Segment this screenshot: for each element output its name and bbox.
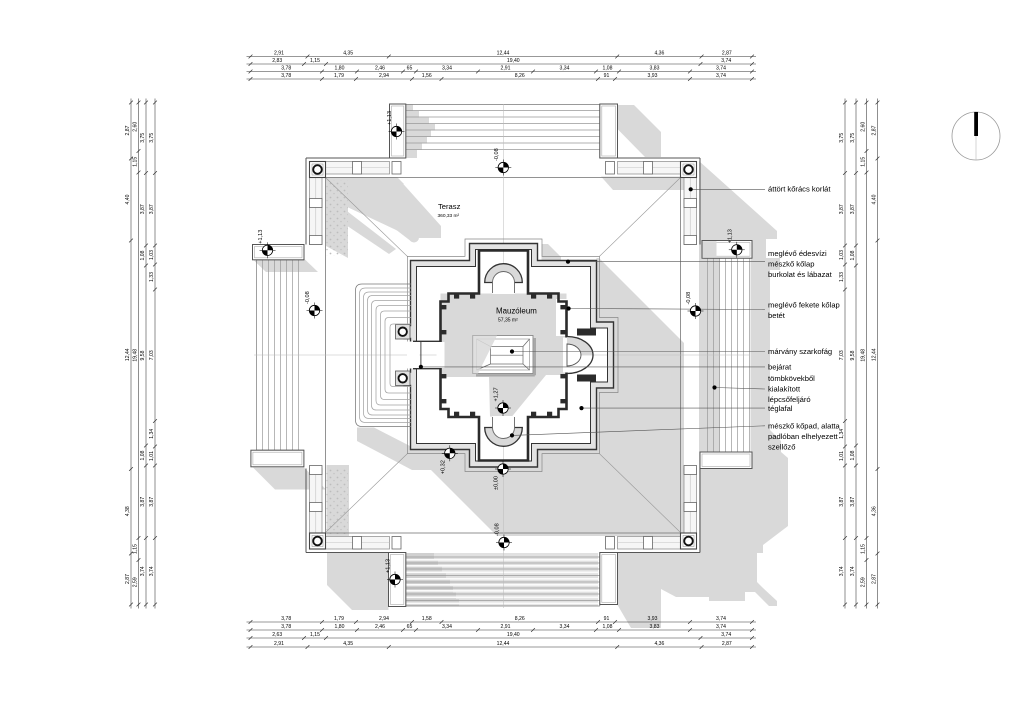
svg-text:1,80: 1,80 — [335, 624, 345, 630]
svg-text:2,46: 2,46 — [375, 66, 385, 72]
svg-text:91: 91 — [604, 616, 610, 622]
svg-text:3,78: 3,78 — [281, 73, 291, 79]
svg-text:meglévő fekete kőlap: meglévő fekete kőlap — [768, 301, 840, 310]
svg-text:bejárat: bejárat — [768, 363, 792, 372]
svg-text:+1,13: +1,13 — [387, 111, 393, 125]
svg-text:2,60: 2,60 — [133, 122, 139, 132]
svg-text:9,58: 9,58 — [850, 350, 856, 360]
svg-text:3,74: 3,74 — [839, 566, 845, 576]
svg-text:19,40: 19,40 — [507, 632, 520, 638]
svg-text:8,26: 8,26 — [515, 616, 525, 622]
svg-text:2,59: 2,59 — [133, 577, 139, 587]
svg-text:meglévő édesvízi: meglévő édesvízi — [768, 249, 827, 258]
svg-text:3,75: 3,75 — [140, 133, 146, 143]
svg-text:3,78: 3,78 — [281, 66, 291, 72]
svg-text:3,34: 3,34 — [442, 624, 452, 630]
svg-text:1,15: 1,15 — [133, 157, 139, 167]
svg-text:3,87: 3,87 — [140, 204, 146, 214]
svg-text:3,75: 3,75 — [149, 133, 155, 143]
svg-text:-0,08: -0,08 — [305, 291, 311, 304]
svg-text:1,79: 1,79 — [334, 73, 344, 79]
svg-text:2,60: 2,60 — [861, 122, 867, 132]
svg-text:57,35 m²: 57,35 m² — [498, 318, 518, 324]
svg-text:4,40: 4,40 — [872, 194, 878, 204]
svg-text:7,03: 7,03 — [839, 350, 845, 360]
svg-text:1,01: 1,01 — [149, 451, 155, 461]
svg-text:1,08: 1,08 — [850, 250, 856, 260]
svg-text:2,91: 2,91 — [501, 624, 511, 630]
svg-text:4,35: 4,35 — [343, 641, 353, 647]
svg-text:2,94: 2,94 — [379, 73, 389, 79]
svg-text:2,87: 2,87 — [125, 125, 131, 135]
svg-text:2,83: 2,83 — [272, 58, 282, 64]
svg-text:téglafal: téglafal — [768, 404, 793, 413]
svg-text:1,08: 1,08 — [603, 66, 613, 72]
svg-text:3,75: 3,75 — [850, 133, 856, 143]
svg-text:2,87: 2,87 — [722, 51, 732, 57]
svg-text:1,03: 1,03 — [149, 250, 155, 260]
svg-text:3,75: 3,75 — [839, 133, 845, 143]
svg-text:tömbkövekből: tömbkövekből — [768, 374, 815, 383]
svg-text:1,80: 1,80 — [335, 66, 345, 72]
svg-text:1,01: 1,01 — [839, 451, 845, 461]
svg-text:1,15: 1,15 — [861, 544, 867, 554]
svg-text:19,48: 19,48 — [861, 349, 867, 362]
svg-text:3,34: 3,34 — [442, 66, 452, 72]
svg-text:12,44: 12,44 — [872, 348, 878, 361]
svg-text:burkolat és lábazat: burkolat és lábazat — [768, 270, 833, 279]
svg-text:betét: betét — [768, 311, 786, 320]
svg-text:2,91: 2,91 — [274, 51, 284, 57]
svg-text:áttört kőrács korlát: áttört kőrács korlát — [768, 185, 831, 194]
svg-text:2,91: 2,91 — [274, 641, 284, 647]
svg-text:1,15: 1,15 — [133, 544, 139, 554]
svg-text:3,34: 3,34 — [560, 624, 570, 630]
svg-text:1,33: 1,33 — [839, 272, 845, 282]
svg-text:4,36: 4,36 — [872, 506, 878, 516]
svg-text:360,33 m²: 360,33 m² — [438, 213, 460, 219]
svg-text:2,87: 2,87 — [872, 574, 878, 584]
svg-text:szellőző: szellőző — [768, 443, 795, 452]
svg-text:1,08: 1,08 — [140, 450, 146, 460]
svg-text:3,78: 3,78 — [281, 616, 291, 622]
svg-text:1,56: 1,56 — [422, 73, 432, 79]
svg-text:3,74: 3,74 — [149, 566, 155, 576]
svg-text:12,44: 12,44 — [125, 348, 131, 361]
svg-text:3,78: 3,78 — [281, 624, 291, 630]
svg-text:7,03: 7,03 — [149, 350, 155, 360]
svg-text:padlóban elhelyezett: padlóban elhelyezett — [768, 432, 839, 441]
svg-text:3,74: 3,74 — [716, 73, 726, 79]
svg-text:1,08: 1,08 — [850, 450, 856, 460]
svg-text:3,74: 3,74 — [140, 566, 146, 576]
svg-text:4,36: 4,36 — [654, 51, 664, 57]
svg-text:3,74: 3,74 — [716, 616, 726, 622]
svg-text:1,34: 1,34 — [149, 429, 155, 439]
svg-text:19,40: 19,40 — [507, 58, 520, 64]
svg-text:3,93: 3,93 — [648, 73, 658, 79]
svg-text:3,83: 3,83 — [650, 624, 660, 630]
svg-text:91: 91 — [604, 73, 610, 79]
svg-text:12,44: 12,44 — [497, 641, 510, 647]
svg-text:19,48: 19,48 — [133, 349, 139, 362]
svg-text:3,93: 3,93 — [648, 616, 658, 622]
svg-text:3,87: 3,87 — [149, 497, 155, 507]
svg-text:3,87: 3,87 — [850, 497, 856, 507]
svg-text:1,15: 1,15 — [310, 632, 320, 638]
svg-text:mészkő kőlap: mészkő kőlap — [768, 260, 814, 269]
svg-text:2,46: 2,46 — [375, 624, 385, 630]
svg-text:65: 65 — [407, 66, 413, 72]
svg-text:3,74: 3,74 — [721, 58, 731, 64]
svg-text:4,36: 4,36 — [654, 641, 664, 647]
svg-text:2,87: 2,87 — [722, 641, 732, 647]
svg-text:3,83: 3,83 — [650, 66, 660, 72]
svg-text:3,87: 3,87 — [850, 204, 856, 214]
svg-text:1,03: 1,03 — [839, 250, 845, 260]
svg-text:2,63: 2,63 — [272, 632, 282, 638]
svg-text:4,38: 4,38 — [125, 506, 131, 516]
svg-text:2,87: 2,87 — [125, 574, 131, 584]
svg-text:3,87: 3,87 — [140, 497, 146, 507]
svg-text:3,74: 3,74 — [716, 66, 726, 72]
svg-text:3,34: 3,34 — [560, 66, 570, 72]
svg-text:-0,08: -0,08 — [686, 292, 692, 305]
svg-text:1,08: 1,08 — [140, 250, 146, 260]
svg-text:1,08: 1,08 — [603, 624, 613, 630]
svg-text:2,94: 2,94 — [379, 616, 389, 622]
svg-text:2,59: 2,59 — [861, 577, 867, 587]
svg-text:-0,08: -0,08 — [494, 148, 500, 161]
svg-text:+1,13: +1,13 — [258, 230, 264, 244]
svg-text:±0,00: ±0,00 — [494, 476, 500, 490]
svg-text:3,74: 3,74 — [716, 624, 726, 630]
svg-text:Mauzóleum: Mauzóleum — [496, 307, 537, 316]
svg-text:4,40: 4,40 — [125, 194, 131, 204]
svg-text:1,15: 1,15 — [310, 58, 320, 64]
svg-text:márvány szarkofág: márvány szarkofág — [768, 347, 832, 356]
svg-text:+1,13: +1,13 — [386, 559, 392, 573]
svg-text:1,33: 1,33 — [149, 272, 155, 282]
svg-text:1,15: 1,15 — [861, 157, 867, 167]
svg-text:3,87: 3,87 — [149, 204, 155, 214]
svg-text:3,87: 3,87 — [839, 204, 845, 214]
svg-text:lépcsőfeljáró: lépcsőfeljáró — [768, 395, 811, 404]
svg-text:1,58: 1,58 — [422, 616, 432, 622]
svg-text:3,74: 3,74 — [850, 566, 856, 576]
svg-text:3,74: 3,74 — [721, 632, 731, 638]
svg-text:65: 65 — [407, 624, 413, 630]
svg-text:Terasz: Terasz — [438, 202, 461, 211]
svg-text:9,58: 9,58 — [140, 350, 146, 360]
svg-text:+1,27: +1,27 — [494, 387, 500, 401]
svg-text:+0,32: +0,32 — [440, 460, 446, 474]
svg-text:2,91: 2,91 — [501, 66, 511, 72]
svg-text:1,34: 1,34 — [839, 429, 845, 439]
svg-text:2,87: 2,87 — [872, 125, 878, 135]
svg-text:1,79: 1,79 — [334, 616, 344, 622]
svg-text:12,44: 12,44 — [497, 51, 510, 57]
svg-text:kialakított: kialakított — [768, 385, 801, 394]
svg-text:+1,13: +1,13 — [727, 229, 733, 243]
svg-text:mészkő kőpad, alatta: mészkő kőpad, alatta — [768, 422, 841, 431]
svg-text:-0,08: -0,08 — [495, 523, 501, 536]
svg-text:4,35: 4,35 — [343, 51, 353, 57]
svg-text:8,26: 8,26 — [515, 73, 525, 79]
svg-text:3,87: 3,87 — [839, 497, 845, 507]
